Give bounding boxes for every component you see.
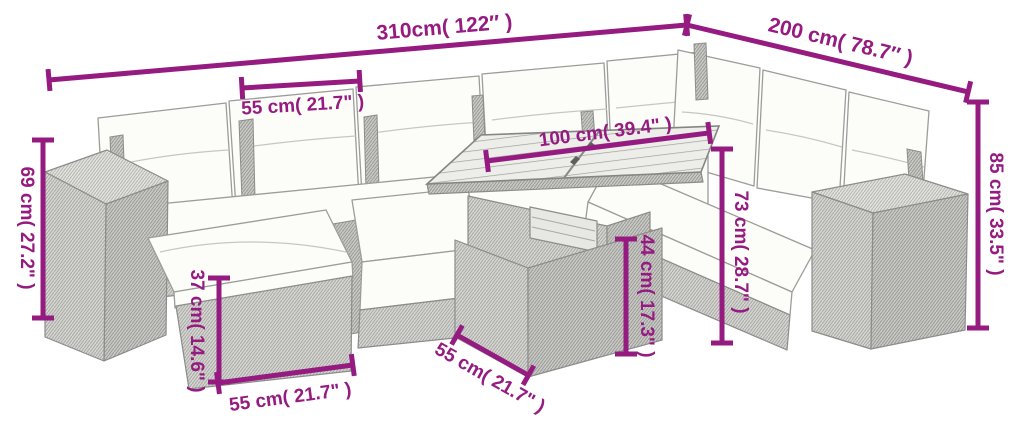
backrest-height-label: 73 cm( 28.7" ) [730,190,751,313]
footstool-width-label: 55 cm( 21.7" ) [228,379,353,416]
total-height-label: 85 cm( 33.5" ) [985,152,1006,275]
sofa-illustration [45,43,968,389]
right-armrest [812,174,968,349]
frame-post [694,43,708,100]
frame-post [239,119,255,200]
left-side-table [45,150,168,361]
diagram-canvas: 310cm( 122″ ) 200 cm( 78.7″ ) 55 cm( 21.… [0,0,1020,428]
side-table-height-label: 69 cm( 27.2" ) [16,166,37,289]
footstool-height-label: 37 cm( 14.6" ) [186,269,207,392]
footstool [148,210,353,389]
furniture-dimension-diagram: 310cm( 122″ ) 200 cm( 78.7″ ) 55 cm( 21.… [0,0,1020,428]
frame-post [364,115,379,190]
table-height-label: 44 cm( 17.3" ) [636,234,657,357]
